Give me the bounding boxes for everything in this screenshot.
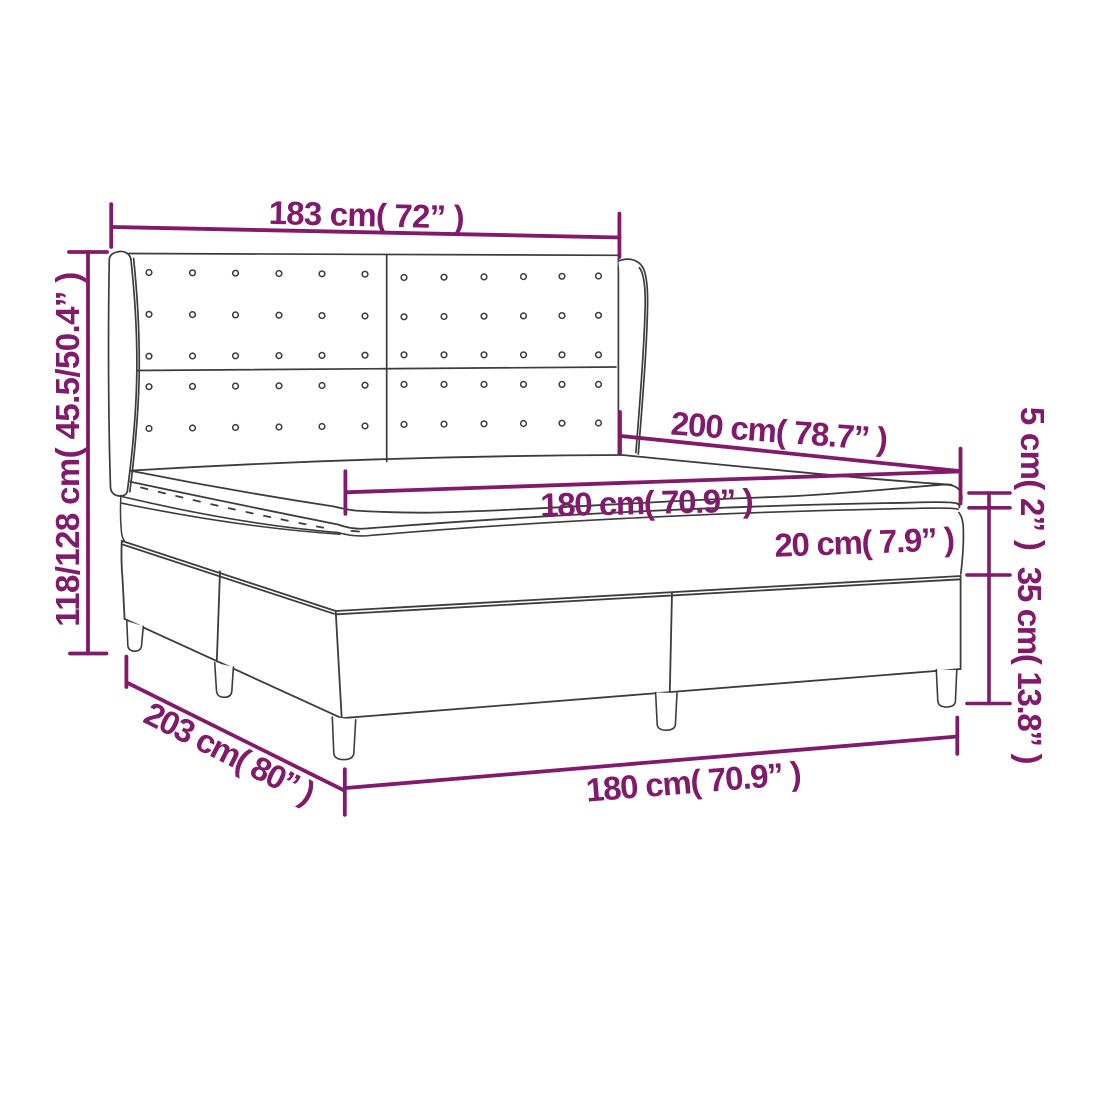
svg-text:118/128 cm( 45.5/50.4” ): 118/128 cm( 45.5/50.4” ) xyxy=(49,272,86,626)
svg-text:20 cm( 7.9” ): 20 cm( 7.9” ) xyxy=(774,520,955,564)
svg-text:35 cm( 13.8” ): 35 cm( 13.8” ) xyxy=(1011,567,1048,764)
svg-text:5 cm( 2” ): 5 cm( 2” ) xyxy=(1014,407,1051,550)
svg-text:183 cm( 72” ): 183 cm( 72” ) xyxy=(268,194,464,236)
svg-text:180 cm( 70.9” ): 180 cm( 70.9” ) xyxy=(540,482,753,524)
